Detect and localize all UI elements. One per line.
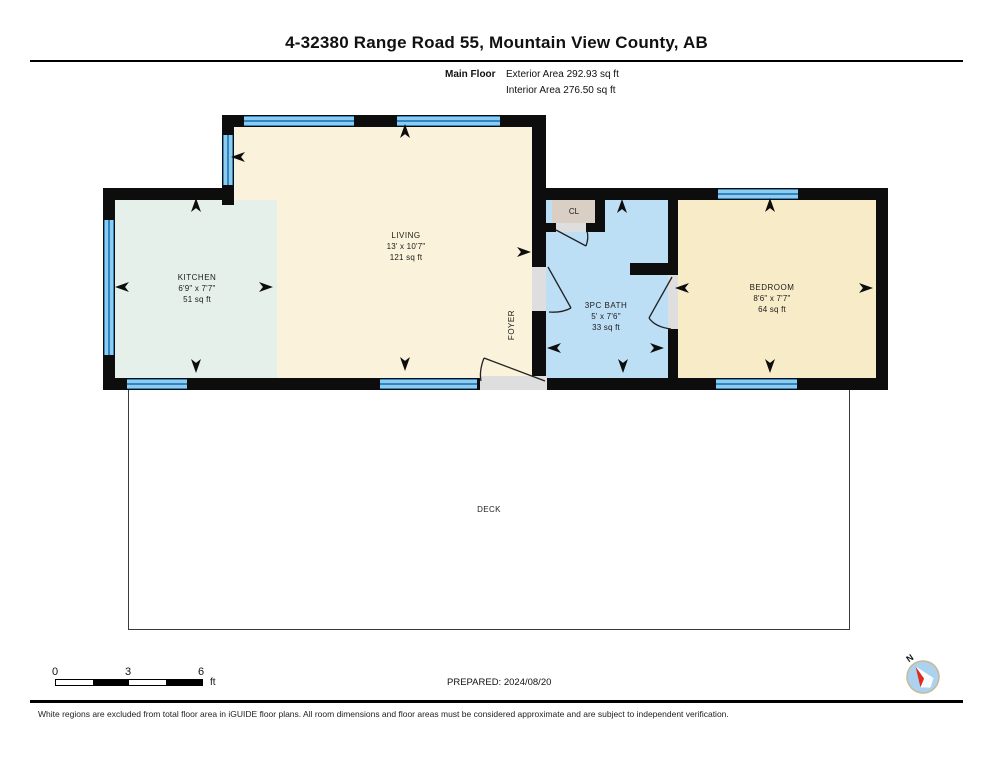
compass-north-label: N — [904, 652, 915, 664]
wall — [546, 223, 556, 232]
wall — [103, 188, 234, 200]
room-dims: 6'9" x 7'7" — [137, 283, 257, 294]
scale-tick-3: 3 — [125, 666, 131, 678]
scale-segment — [166, 680, 203, 685]
window — [127, 379, 187, 389]
window — [718, 189, 798, 199]
window — [104, 220, 114, 355]
scale-tick-6: 6 — [198, 666, 204, 678]
bath-door-opening — [532, 267, 546, 311]
kitchen-label: KITCHEN 6'9" x 7'7" 51 sq ft — [137, 272, 257, 305]
window — [380, 379, 477, 389]
foyer-label: FOYER — [507, 310, 516, 340]
closet-door-opening — [556, 223, 586, 232]
scale-tick-0: 0 — [52, 666, 58, 678]
scale-ticks: 0 3 6 — [55, 666, 203, 679]
interior-area: Interior Area 276.50 sq ft — [506, 85, 616, 96]
closet-label: CL — [553, 207, 595, 216]
floor-label: Main Floor — [445, 69, 496, 80]
room-dims: 13' x 10'7" — [346, 241, 466, 252]
bath-label: 3PC BATH 5' x 7'6" 33 sq ft — [546, 300, 666, 333]
window — [716, 379, 797, 389]
window — [223, 135, 233, 185]
wall — [532, 188, 888, 200]
scale-segment — [129, 680, 166, 685]
window — [397, 116, 500, 126]
bedroom-door-opening — [668, 275, 678, 329]
scale-segment — [93, 680, 130, 685]
deck-area: DECK — [128, 388, 850, 630]
room-name: BEDROOM — [712, 282, 832, 293]
room-dims: 5' x 7'6" — [546, 311, 666, 322]
deck-label: DECK — [477, 505, 501, 514]
room-dims: 8'6" x 7'7" — [712, 293, 832, 304]
page-title: 4-32380 Range Road 55, Mountain View Cou… — [0, 33, 993, 53]
room-name: 3PC BATH — [546, 300, 666, 311]
exterior-area: Exterior Area 292.93 sq ft — [506, 69, 619, 80]
scale-bar: 0 3 6 ft — [55, 666, 203, 686]
disclaimer-text: White regions are excluded from total fl… — [38, 709, 729, 719]
living-label: LIVING 13' x 10'7" 121 sq ft — [346, 230, 466, 263]
scale-bar-segments — [55, 679, 203, 686]
room-name: LIVING — [346, 230, 466, 241]
room-area: 121 sq ft — [346, 252, 466, 263]
footer-divider — [30, 700, 963, 703]
room-name: KITCHEN — [137, 272, 257, 283]
room-area: 64 sq ft — [712, 304, 832, 315]
room-area: 33 sq ft — [546, 322, 666, 333]
prepared-date: PREPARED: 2024/08/20 — [447, 677, 551, 688]
entry-door-opening — [480, 376, 547, 390]
wall — [876, 188, 888, 390]
compass-icon: N — [893, 645, 951, 706]
window — [244, 116, 354, 126]
wall — [532, 115, 546, 390]
bedroom-label: BEDROOM 8'6" x 7'7" 64 sq ft — [712, 282, 832, 315]
scale-segment — [56, 680, 93, 685]
scale-unit: ft — [210, 677, 216, 688]
wall — [630, 263, 668, 275]
room-area: 51 sq ft — [137, 294, 257, 305]
wall — [586, 223, 605, 232]
header-divider — [30, 60, 963, 62]
